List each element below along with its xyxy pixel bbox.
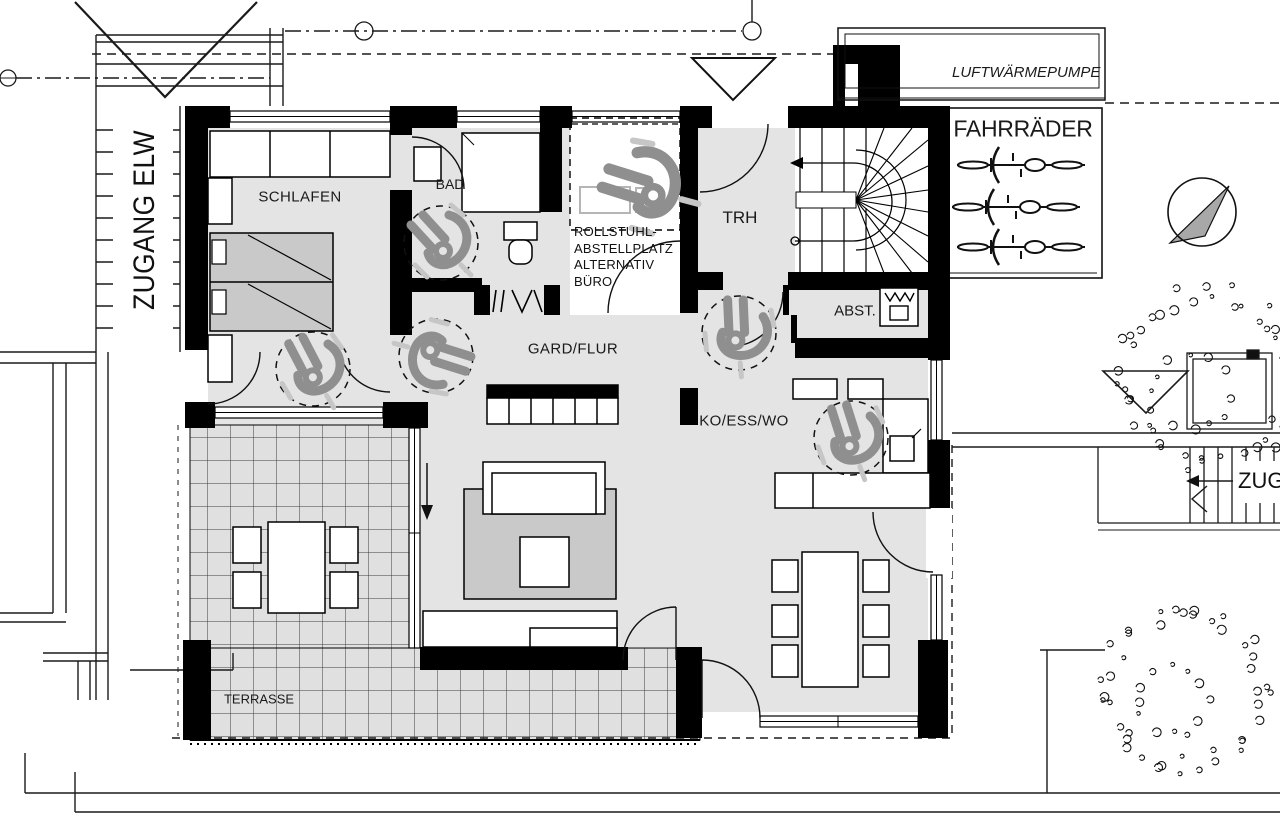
north-arrow-icon bbox=[1168, 178, 1236, 246]
rollstuhl-annotation: ROLLSTUHL- ABSTELLPLATZ ALTERNATIV BÜRO bbox=[574, 224, 673, 290]
hall-wardrobe bbox=[487, 385, 618, 424]
zugang-elw-label: ZUGANG ELW bbox=[128, 130, 162, 310]
room-label-gard-flur: GARD/FLUR bbox=[528, 341, 618, 358]
tree-icon bbox=[1114, 283, 1280, 473]
dining-table bbox=[802, 552, 858, 687]
floor-plan-page: ZUGANG ELW SCHLAFEN BAD TRH ABST. GARD/F… bbox=[0, 0, 1280, 820]
room-label-ko-ess-wo: KO/ESS/WO bbox=[699, 413, 788, 430]
kitchen-island bbox=[775, 473, 930, 508]
entrance-arrow-icon bbox=[75, 2, 257, 97]
heat-pump-label: LUFTWÄRMEPUMPE bbox=[952, 64, 1100, 81]
room-label-schlafen: SCHLAFEN bbox=[258, 189, 341, 206]
east-entrance bbox=[1098, 350, 1280, 530]
dining-set bbox=[772, 552, 889, 687]
tree-icon bbox=[1098, 606, 1273, 776]
coffee-table bbox=[520, 537, 569, 587]
room-label-bad: BAD bbox=[436, 176, 465, 192]
sideboard bbox=[423, 611, 617, 647]
room-label-trh: TRH bbox=[723, 208, 758, 228]
wardrobe bbox=[210, 131, 390, 177]
survey-point-icon bbox=[743, 22, 761, 40]
terrace-table bbox=[268, 522, 325, 613]
washing-machine-icon bbox=[880, 288, 918, 326]
entrance-triangle-icon bbox=[1103, 371, 1188, 413]
double-bed bbox=[210, 233, 333, 331]
bicycles-label: FAHRRÄDER bbox=[953, 116, 1092, 143]
entrance-triangle-icon bbox=[692, 58, 775, 100]
room-label-abst: ABST. bbox=[834, 303, 876, 320]
sofa bbox=[483, 462, 605, 514]
kitchen-sink bbox=[890, 436, 914, 461]
zugang-east-label: ZUGANG bbox=[1238, 468, 1280, 494]
direction-arrow-icon bbox=[1186, 475, 1199, 487]
room-label-terrasse: TERRASSE bbox=[224, 692, 294, 707]
